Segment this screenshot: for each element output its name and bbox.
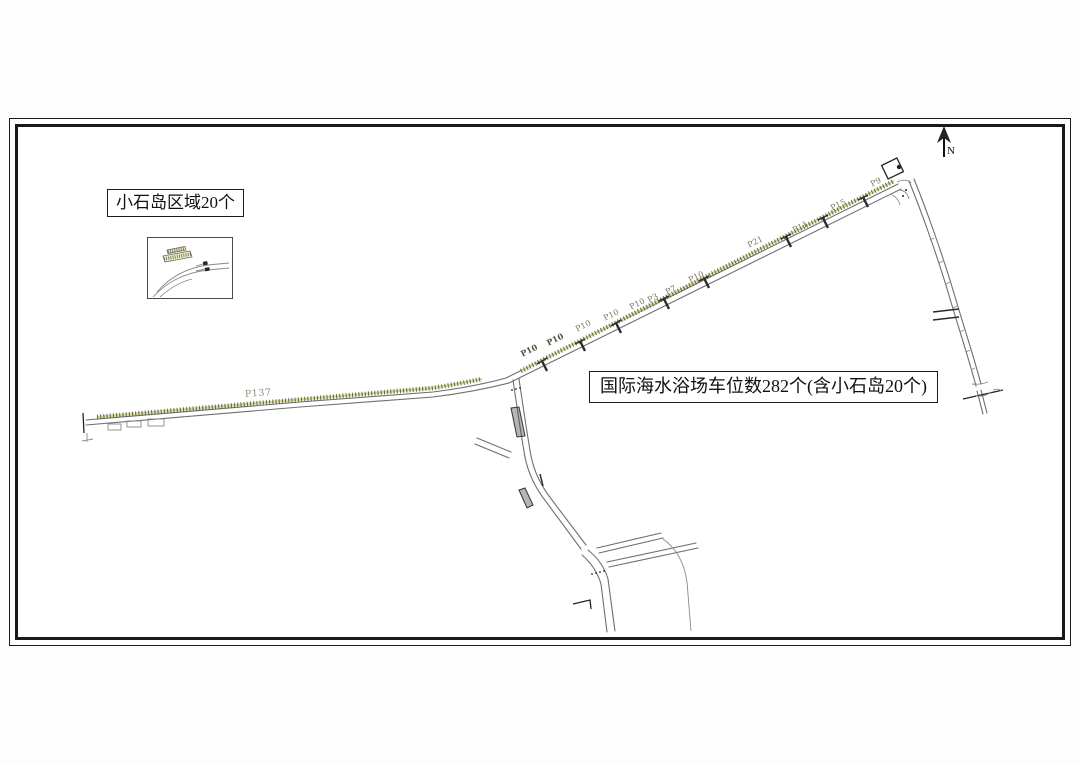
region-count-box: 小石岛区域20个 — [107, 189, 244, 217]
parking-count-label: P137 — [245, 387, 272, 400]
north-arrow-icon: N — [937, 126, 955, 157]
site-plan-page: { "drawing": { "region_label": "小石岛区域20个… — [0, 0, 1080, 763]
inset-map-box — [147, 237, 233, 299]
south-junction — [573, 533, 698, 632]
south-road — [475, 379, 586, 549]
north-junction — [890, 165, 911, 205]
main-road-northeast — [506, 184, 901, 383]
compass-n-label: N — [947, 145, 955, 157]
total-count-box: 国际海水浴场车位数282个(含小石岛20个) — [589, 371, 938, 403]
